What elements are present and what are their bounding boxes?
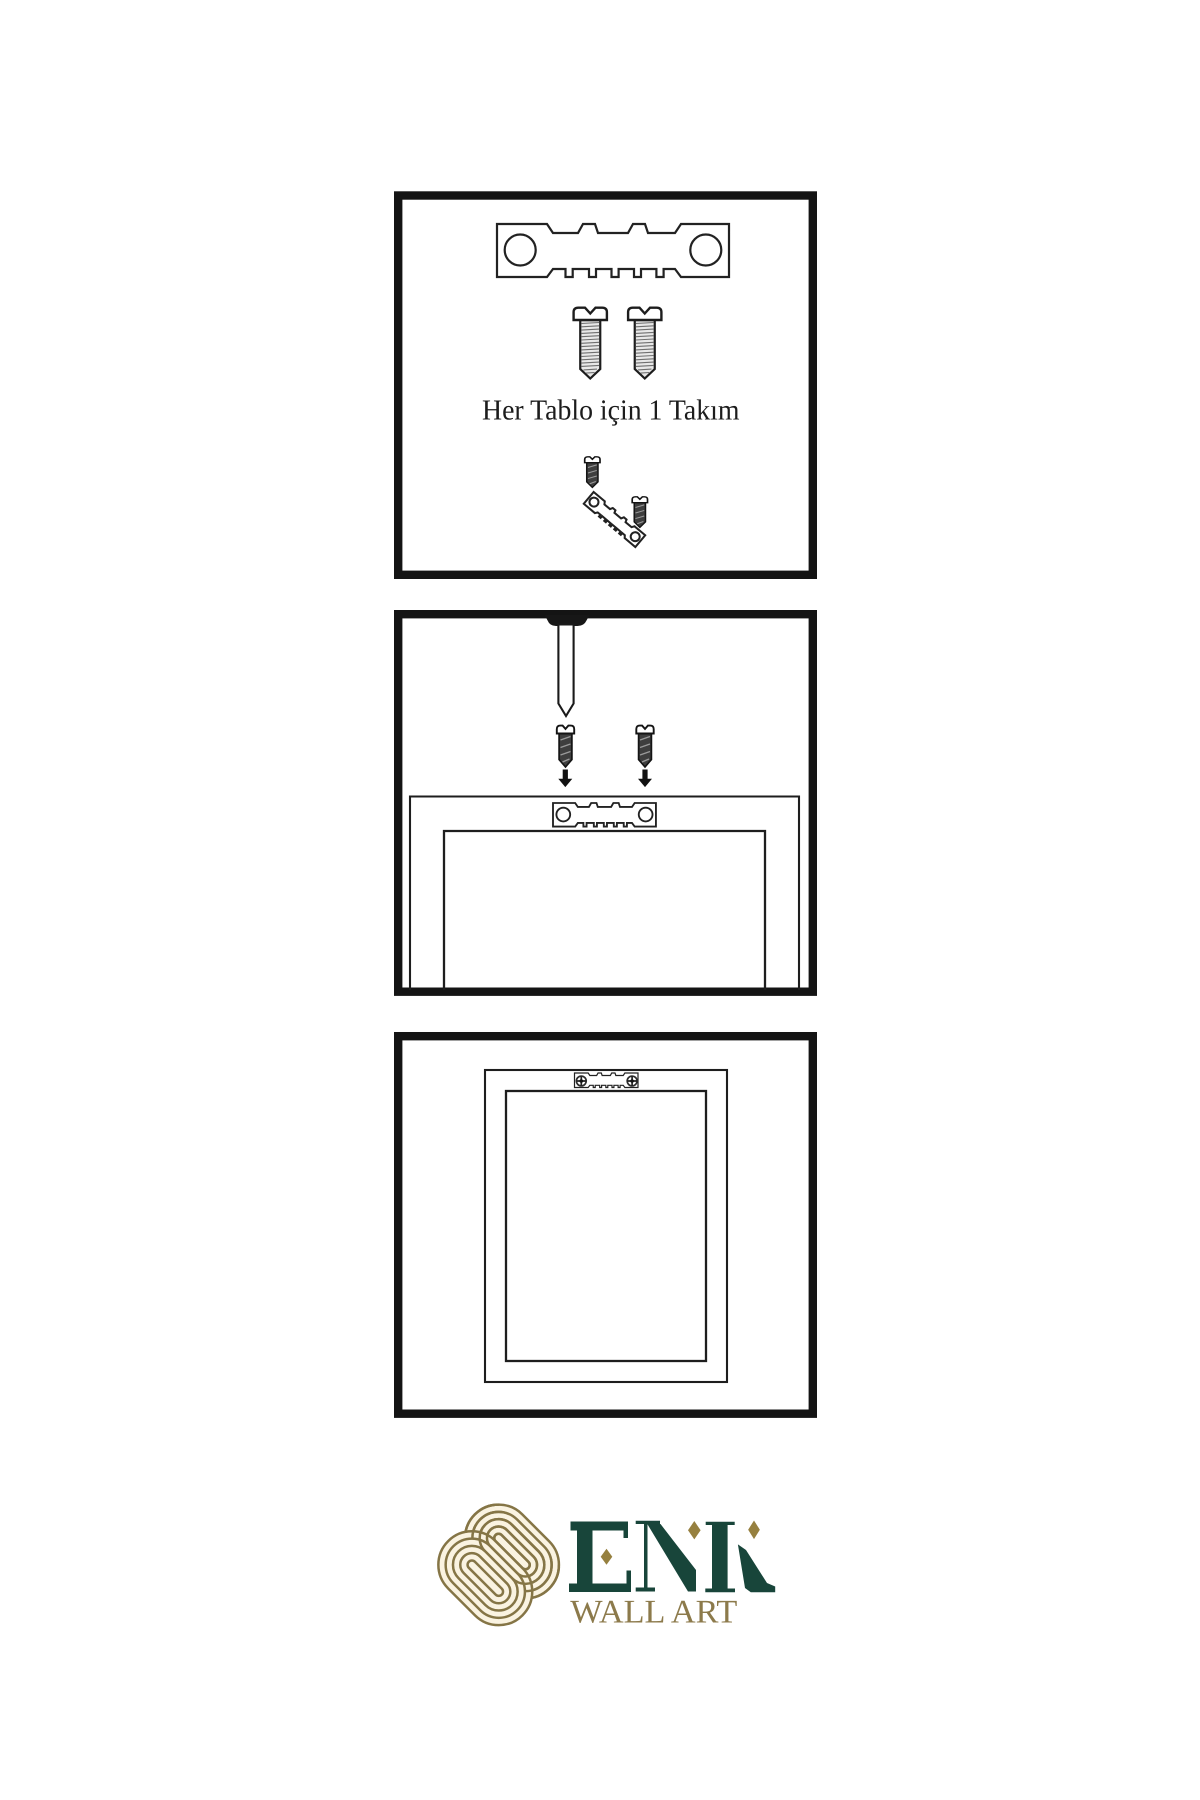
svg-text:Her Tablo için 1 Takım: Her Tablo için 1 Takım	[482, 394, 740, 426]
svg-text:WALL ART: WALL ART	[570, 1594, 737, 1630]
